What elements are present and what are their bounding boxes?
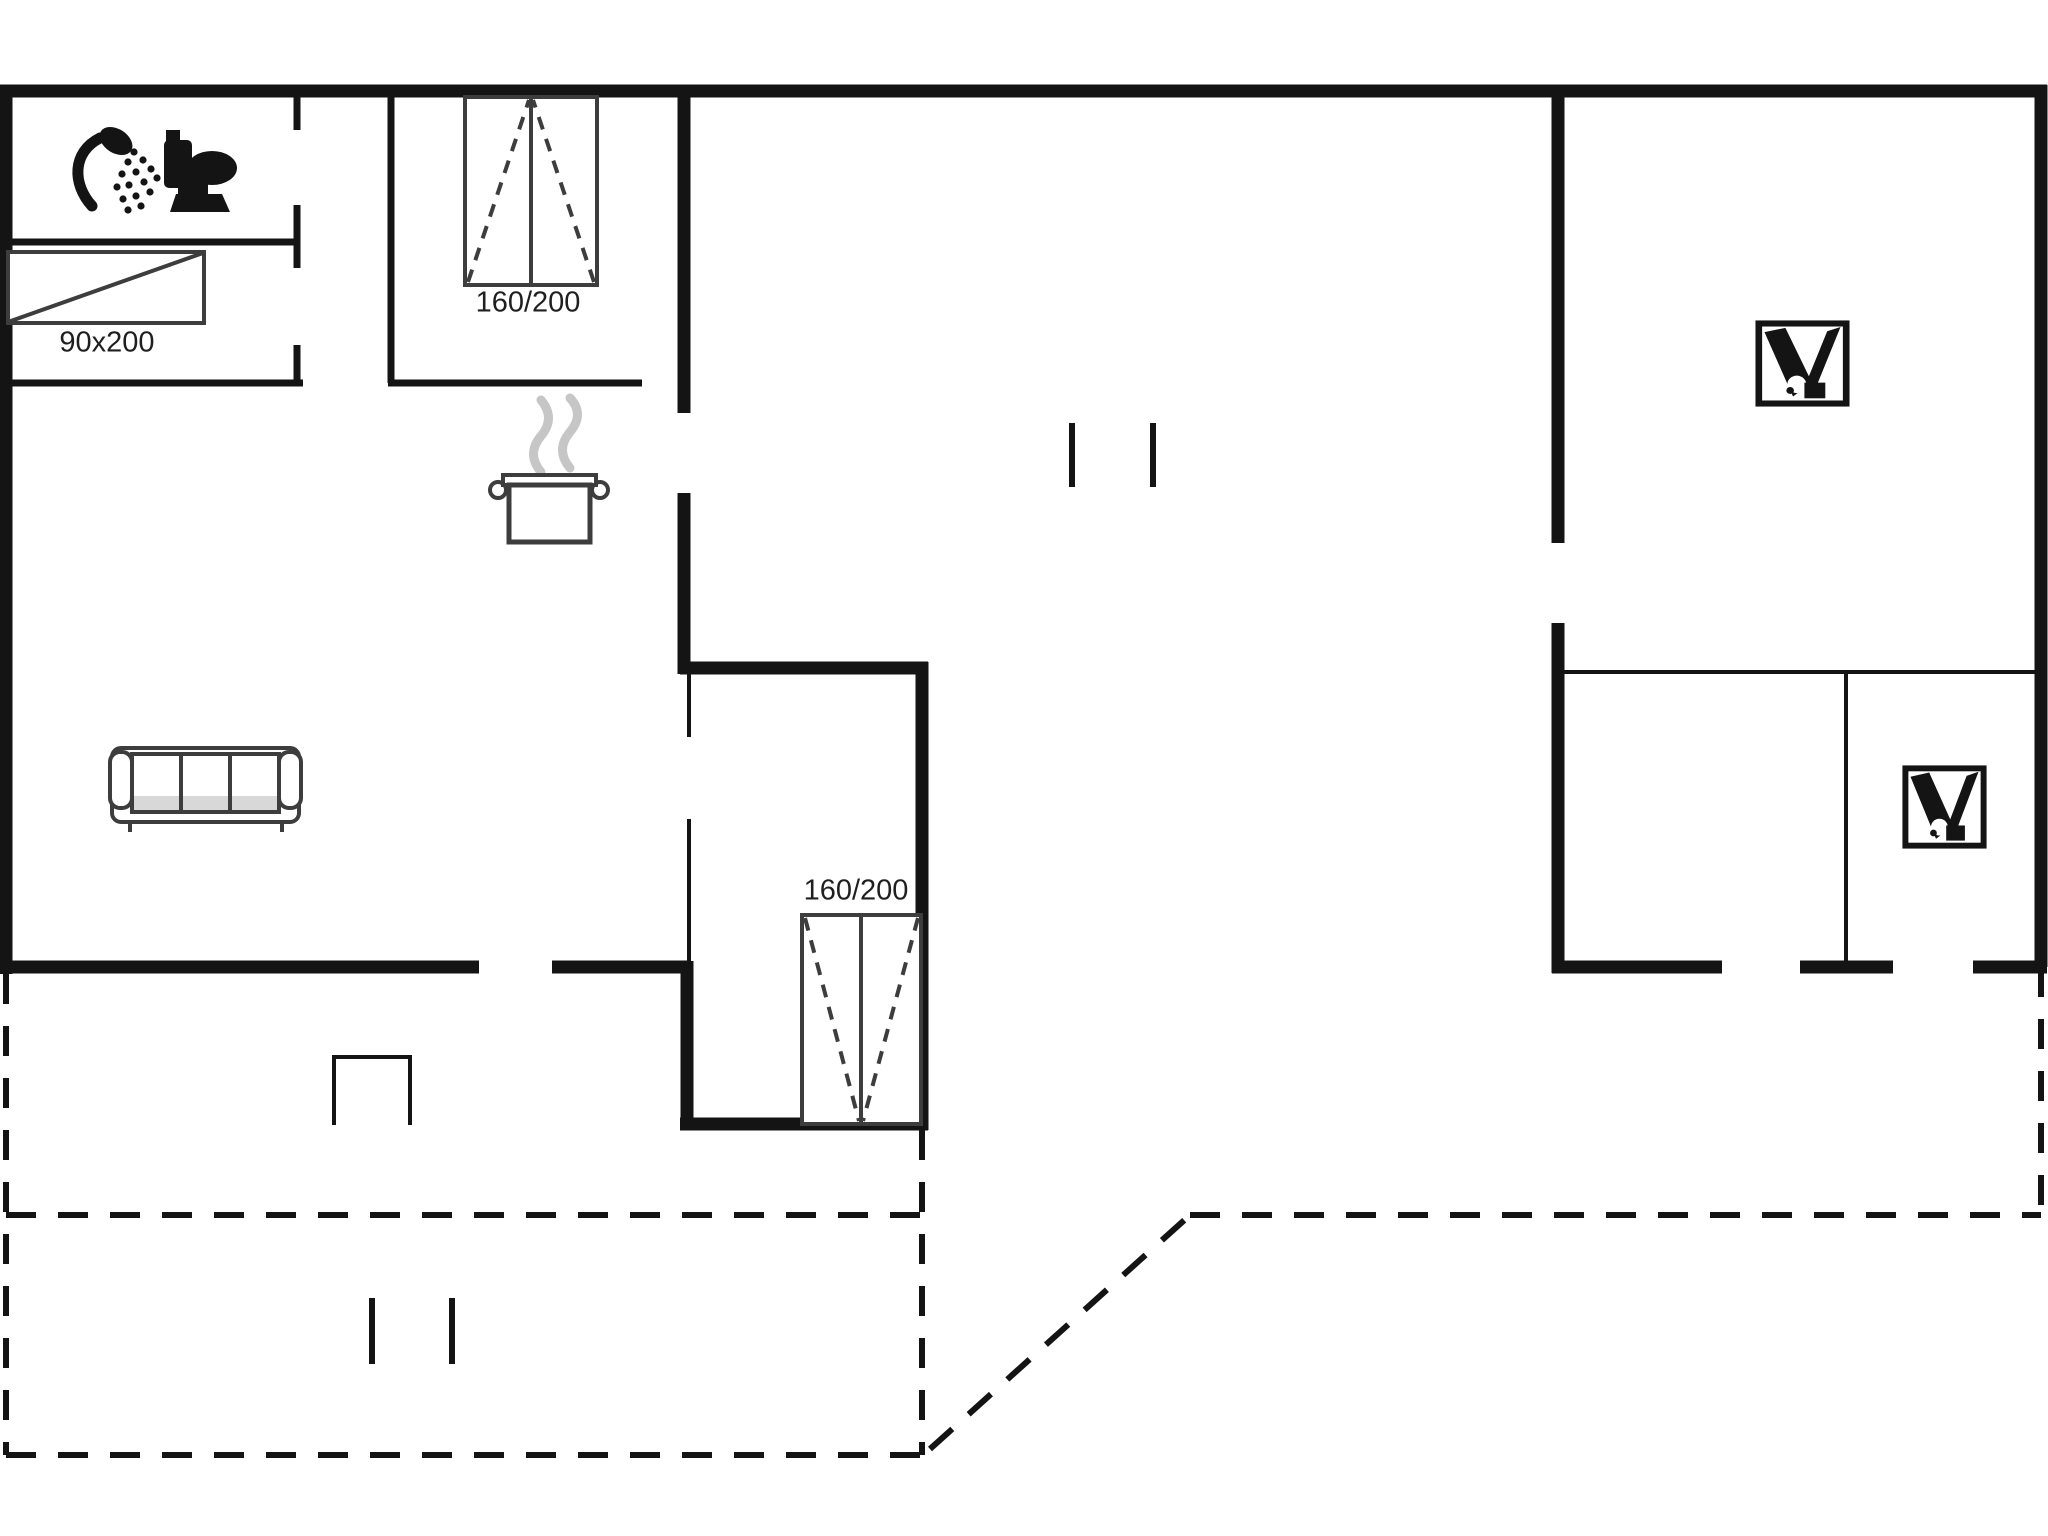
outer-walls [0,85,2047,1130]
single-bed-90x200 [8,252,204,323]
bed-size-label-double-top: 160/200 [476,287,581,320]
bunk-bed-icon-2 [1905,768,1983,845]
bed-size-label-single: 90x200 [59,327,154,360]
bed-size-label-double-annex: 160/200 [804,875,909,908]
threshold-ticks [372,423,1153,1364]
double-bed-annex [802,915,921,1124]
terrace-dashed-outline [6,967,2041,1455]
terrace-step-outline [334,1057,410,1125]
cooking-pot-icon [490,398,608,542]
floorplan-drawing [0,0,2048,1536]
bunk-bed-icon-1 [1759,323,1846,403]
floorplan-canvas: 90x200 160/200 160/200 [0,0,2048,1536]
sofa-icon [110,748,301,832]
shower-icon [78,121,161,213]
toilet-icon [164,130,237,212]
interior-walls [6,97,2041,967]
double-bed-top [465,97,597,285]
